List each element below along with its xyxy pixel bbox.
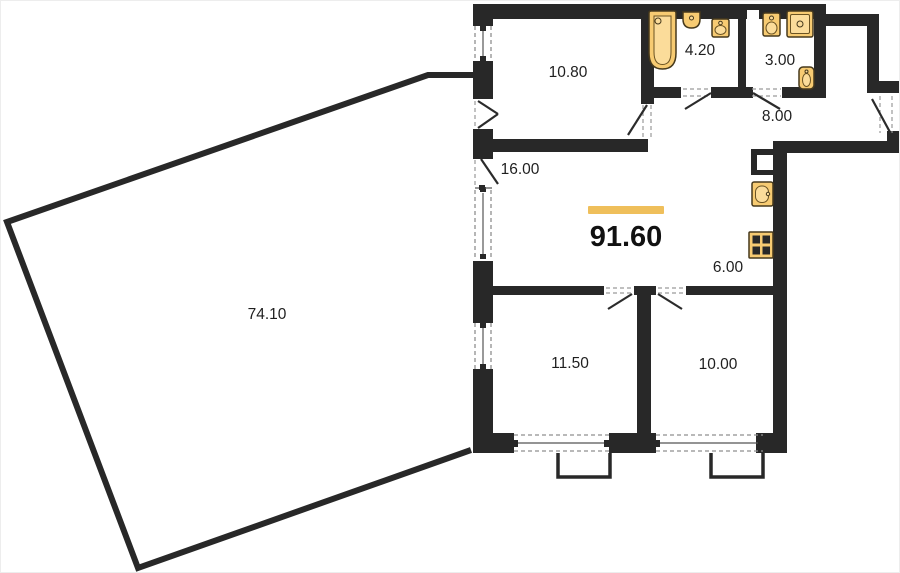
window-left-bottom	[475, 323, 491, 369]
window-left-middle	[475, 187, 491, 259]
door-bedroom-left	[606, 288, 632, 309]
balcony-right	[711, 453, 763, 477]
sink-icon	[712, 19, 729, 37]
sink-icon	[683, 12, 700, 28]
stove-icon	[749, 232, 773, 258]
entrance-door	[872, 96, 892, 134]
door-room-top	[628, 105, 651, 137]
door-bathroom	[683, 89, 711, 109]
balcony-left	[558, 453, 610, 477]
room-label-kitchen: 6.00	[713, 259, 744, 276]
room-label-toilet-room: 3.00	[765, 52, 796, 69]
floor-plan-canvas: 91.60 74.10 10.80 4.20 3.00 8.00 16.00 6…	[1, 1, 900, 573]
door-bedroom-right	[658, 288, 684, 309]
room-label-bathroom: 4.20	[685, 42, 716, 59]
window-bedroom-right	[655, 435, 763, 451]
kitchen-sink-icon	[752, 182, 773, 206]
sink-icon	[763, 13, 780, 36]
room-label-room-top: 10.80	[549, 64, 588, 81]
room-label-terrace: 74.10	[248, 306, 287, 323]
terrace-outline	[7, 75, 475, 568]
total-area-label: 91.60	[590, 221, 663, 253]
room-label-hallway: 8.00	[762, 108, 793, 125]
terrace-door-lower	[475, 159, 498, 190]
washing-machine-icon	[787, 11, 813, 37]
floor-plan: 91.60 74.10 10.80 4.20 3.00 8.00 16.00 6…	[0, 0, 900, 573]
total-area-accent-bar	[588, 206, 664, 214]
window-bedroom-left	[513, 435, 609, 451]
room-label-living-room: 16.00	[501, 161, 540, 178]
room-label-bedroom-right: 10.00	[699, 356, 738, 373]
window-left-top	[475, 26, 491, 61]
terrace-door-upper	[475, 101, 498, 128]
toilet-icon	[799, 67, 814, 89]
room-label-bedroom-left: 11.50	[551, 355, 589, 372]
door-toilet-room	[752, 89, 781, 109]
bathtub-icon	[649, 11, 676, 69]
walls	[473, 4, 899, 453]
